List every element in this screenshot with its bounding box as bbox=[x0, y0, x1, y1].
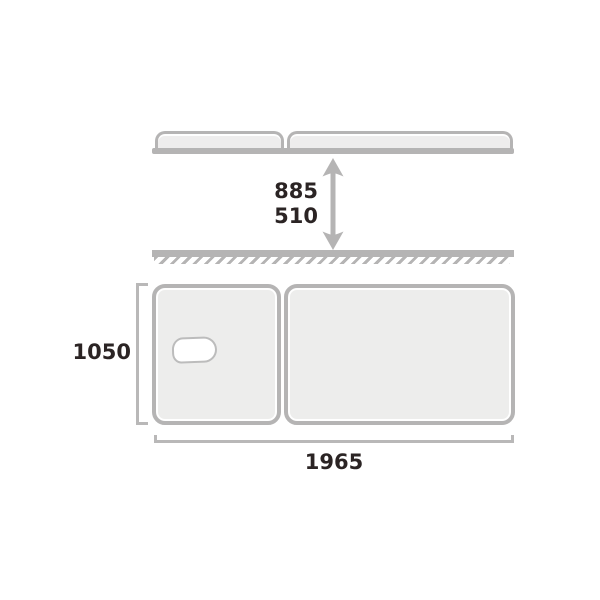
face-hole-icon bbox=[172, 336, 218, 364]
floor-hatch-icon bbox=[154, 257, 510, 264]
table-top-view bbox=[152, 284, 515, 425]
table-side-view bbox=[152, 131, 514, 156]
dimension-diagram: 885 510 1050 1965 bbox=[0, 0, 600, 600]
height-dimension-labels: 885 510 bbox=[238, 179, 318, 229]
length-dimension-bracket bbox=[154, 435, 514, 443]
floor-line bbox=[152, 250, 514, 264]
height-max-label: 885 bbox=[238, 179, 318, 204]
length-dimension-label: 1965 bbox=[154, 450, 514, 475]
width-dimension-bracket bbox=[136, 283, 148, 425]
height-min-label: 510 bbox=[238, 204, 318, 229]
floor-bar bbox=[152, 250, 514, 257]
top-view-body-section bbox=[284, 284, 515, 425]
side-view-head-section bbox=[155, 131, 284, 149]
width-dimension-label: 1050 bbox=[54, 340, 131, 365]
side-view-base-line bbox=[152, 148, 514, 154]
side-view-body-section bbox=[287, 131, 513, 149]
top-view-head-section bbox=[152, 284, 281, 425]
height-range-arrow-icon bbox=[320, 158, 346, 250]
